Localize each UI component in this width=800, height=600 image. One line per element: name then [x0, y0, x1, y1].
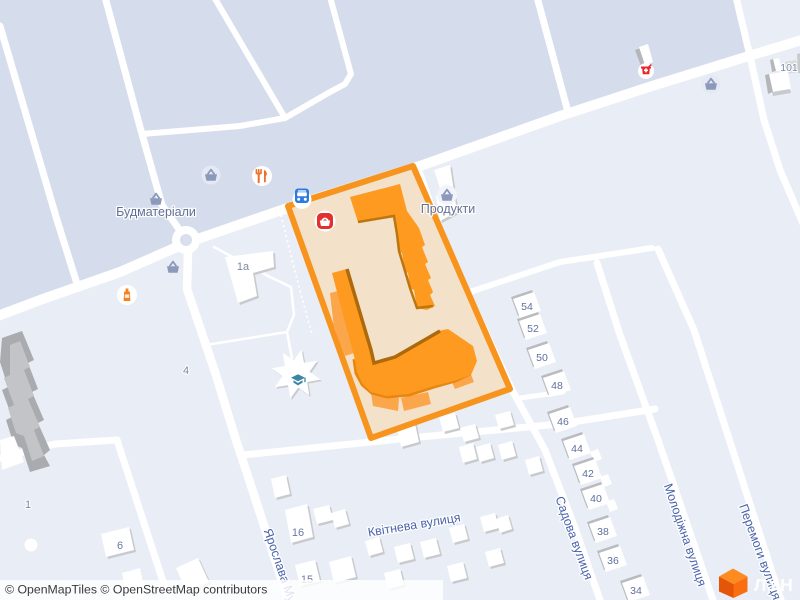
svg-text:4: 4	[183, 365, 189, 377]
svg-text:ЛУН: ЛУН	[754, 575, 794, 595]
svg-text:48: 48	[551, 380, 563, 392]
svg-text:44: 44	[571, 443, 583, 455]
svg-text:101: 101	[780, 62, 798, 74]
svg-text:© OpenMapTiles © OpenStreetMap: © OpenMapTiles © OpenStreetMap contribut…	[5, 583, 267, 597]
svg-text:40: 40	[590, 493, 602, 505]
svg-text:38: 38	[597, 526, 609, 538]
svg-text:Будматеріали: Будматеріали	[116, 205, 196, 219]
svg-text:42: 42	[582, 468, 594, 480]
svg-text:16: 16	[292, 527, 304, 539]
svg-text:36: 36	[607, 555, 619, 567]
svg-text:54: 54	[521, 301, 533, 313]
svg-text:Продукти: Продукти	[421, 202, 475, 216]
svg-text:50: 50	[536, 352, 548, 364]
svg-text:1а: 1а	[237, 261, 250, 273]
svg-text:6: 6	[117, 540, 123, 552]
svg-text:34: 34	[630, 585, 642, 597]
svg-text:46: 46	[557, 416, 569, 428]
svg-text:1: 1	[25, 499, 31, 511]
svg-text:52: 52	[527, 323, 539, 335]
